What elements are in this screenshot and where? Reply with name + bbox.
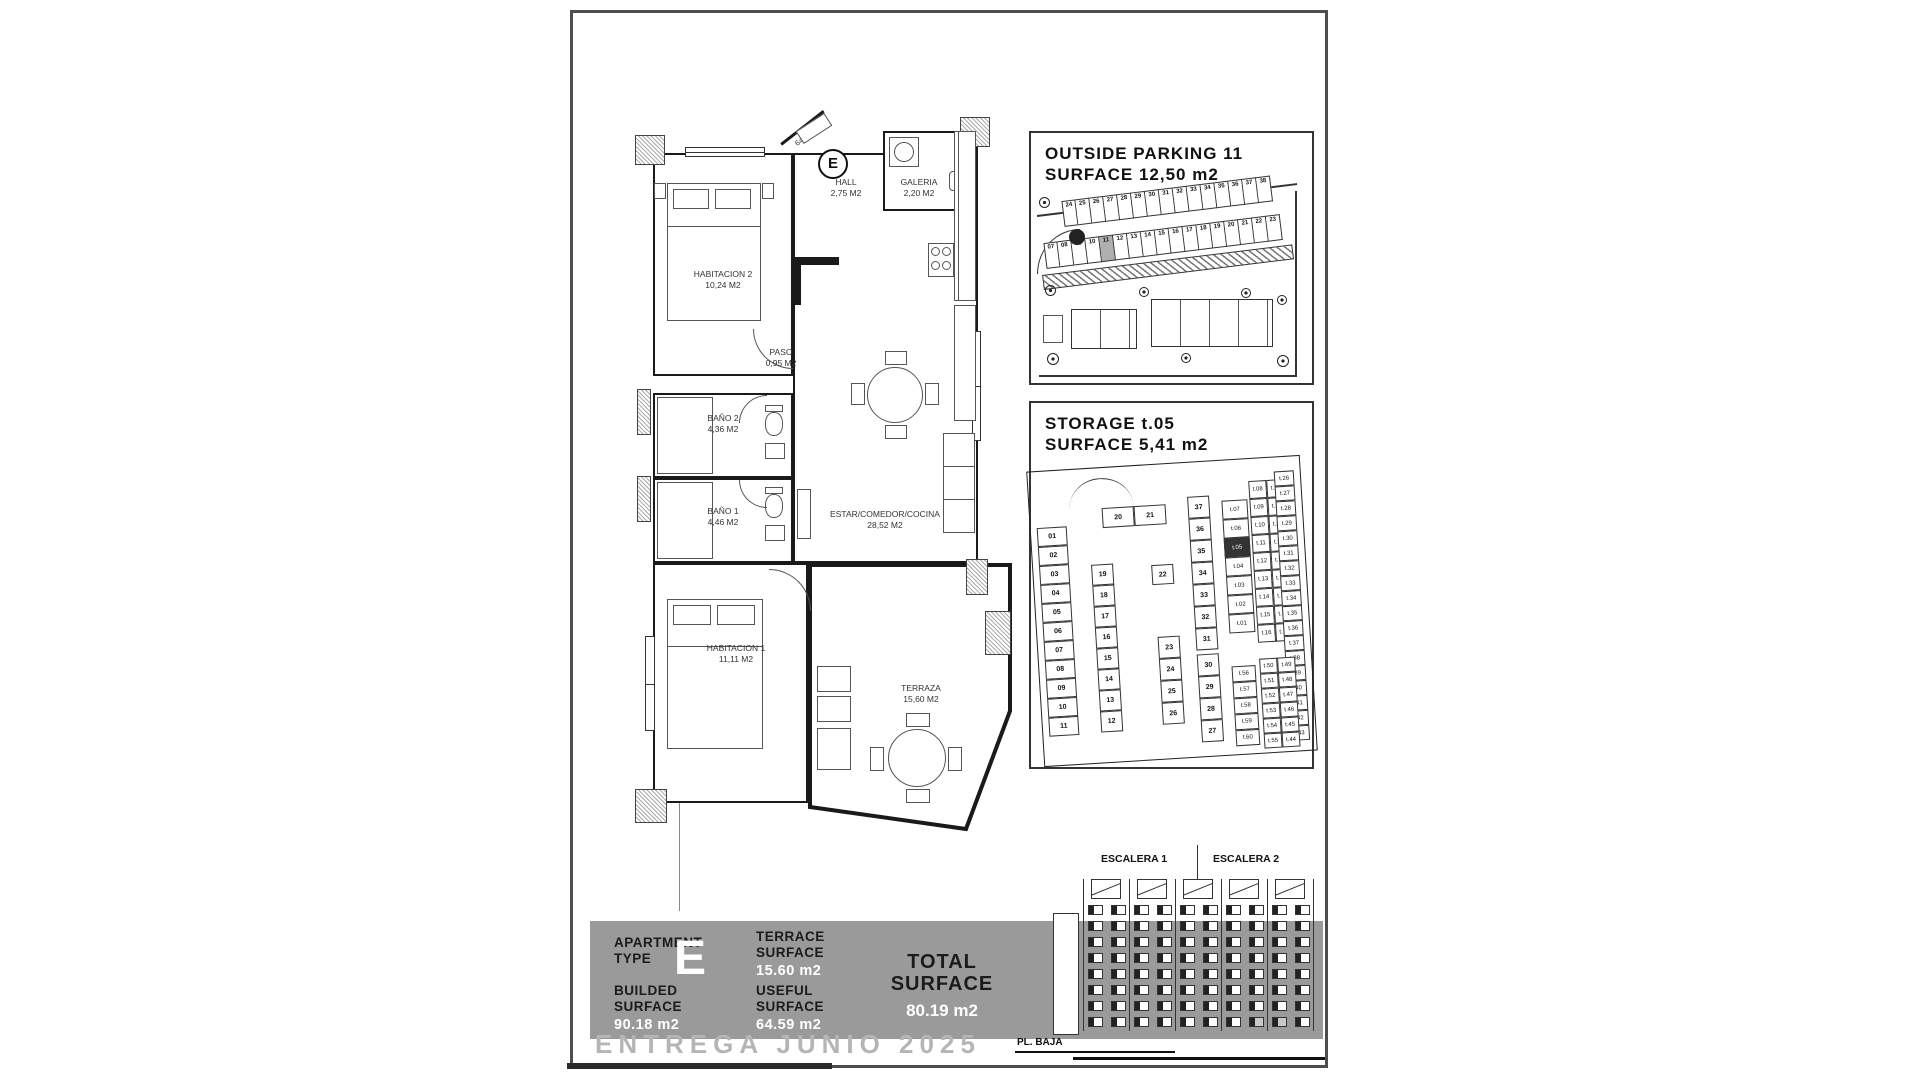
nightstand <box>654 183 666 199</box>
burner <box>942 247 951 256</box>
storage-unit: t.14 <box>1255 588 1274 607</box>
basement-spot: 14 <box>1097 668 1120 690</box>
storage-unit: t.27 <box>1275 485 1296 501</box>
chair <box>885 351 907 365</box>
building-elevation: ESCALERA 1 ESCALERA 2 PL. BAJA <box>1013 845 1333 1063</box>
basement-spot: 28 <box>1199 697 1222 720</box>
basement-spot: 32 <box>1194 605 1217 628</box>
dining-table <box>867 367 923 423</box>
storage-unit: t.55 <box>1264 733 1283 749</box>
tree-icon <box>1039 197 1050 208</box>
building-footprint <box>1151 299 1273 347</box>
wall-pillar <box>966 559 988 595</box>
storage-unit: t.26 <box>1274 470 1295 486</box>
storage-diagram: 0102030405060708091011 2021 191817161514… <box>1026 455 1318 767</box>
storage-unit: t.28 <box>1276 500 1297 516</box>
storage-unit: t.31 <box>1278 545 1299 561</box>
annex-tower <box>1053 913 1079 1035</box>
storage-col-b: 23242526 <box>1158 636 1185 725</box>
basement-spot: 37 <box>1187 496 1210 519</box>
storage-unit: t.03 <box>1226 575 1253 596</box>
plan-sheet: 64,59 M2 E <box>570 10 1328 1068</box>
storage-ramp-spots: 2021 <box>1102 504 1167 528</box>
basement-spot: 13 <box>1099 689 1122 711</box>
storage-unit: t.04 <box>1225 556 1252 577</box>
wall-pillar <box>635 135 665 165</box>
storage-unit: t.29 <box>1276 515 1297 531</box>
tree-icon <box>1045 285 1056 296</box>
parking-boundary-bottom <box>1039 375 1297 377</box>
room-label-banyo-1: BAÑO 14,46 M2 <box>683 506 763 528</box>
wall-stub-h <box>793 257 839 265</box>
nightstand <box>762 183 774 199</box>
ground-line <box>1073 1057 1325 1060</box>
basement-spot: 10 <box>1047 697 1078 718</box>
storage-unit: t.15 <box>1256 606 1275 625</box>
basement-spot: 25 <box>1160 680 1183 703</box>
storage-unit: t.37 <box>1284 635 1305 651</box>
storage-bottom-singles: t.56t.57t.58t.59t.60 <box>1231 665 1260 746</box>
lower-floor-edge-line <box>679 803 680 911</box>
storage-unit-pair: t.55 t.44 <box>1264 731 1301 748</box>
tree-icon <box>1241 288 1251 298</box>
basement-spot: 26 <box>1162 701 1185 724</box>
storage-unit: t.10 <box>1250 516 1269 535</box>
basement-spot: 06 <box>1042 621 1073 642</box>
wall-pillar <box>635 789 667 823</box>
terrace-planter <box>985 611 1011 655</box>
tv-cabinet <box>797 489 811 539</box>
pl-baja-label: PL. BAJA <box>1017 1037 1063 1048</box>
storage-unit: t.50 <box>1259 658 1278 674</box>
basement-spot: 33 <box>1192 583 1215 606</box>
room-label-habitacion-1: HABITACION 111,11 M2 <box>676 643 796 665</box>
terrace-surface-label: TERRACE SURFACE <box>756 929 825 961</box>
chair <box>885 425 907 439</box>
basement-spot: 17 <box>1094 605 1117 627</box>
total-surface-label: TOTAL SURFACE <box>862 951 1022 995</box>
storage-unit: t.08 <box>1248 480 1267 499</box>
wall-pillar <box>637 389 651 435</box>
pillow <box>673 605 711 625</box>
basement-spot: 29 <box>1198 675 1221 698</box>
storage-unit: t.57 <box>1232 681 1257 698</box>
tree-icon <box>1069 229 1085 245</box>
storage-unit: t.01 <box>1228 613 1255 634</box>
room-label-galeria: GALERIA2,20 M2 <box>877 177 961 199</box>
builded-surface-label: BUILDED SURFACE <box>614 983 682 1015</box>
storage-unit: t.02 <box>1227 594 1254 615</box>
storage-unit: t.56 <box>1231 665 1256 682</box>
building-footprint <box>1071 309 1137 349</box>
terrace-bench <box>817 728 851 770</box>
basement-spot: 08 <box>1045 659 1076 680</box>
terrace-surface-value: 15.60 m2 <box>756 963 821 979</box>
basement-spot: 23 <box>1158 636 1181 659</box>
room-label-hall: HALL2,75 M2 <box>811 177 881 199</box>
basement-spot: 09 <box>1046 678 1077 699</box>
basement-spot: 36 <box>1188 517 1211 540</box>
storage-unit: t.46 <box>1280 701 1299 717</box>
toilet-tank <box>765 487 783 494</box>
storage-unit: t.34 <box>1281 590 1302 606</box>
storage-unit: t.16 <box>1257 624 1276 643</box>
basement-spot: 31 <box>1195 627 1218 650</box>
storage-unit: t.30 <box>1277 530 1298 546</box>
room-label-habitacion-2: HABITACION 210,24 M2 <box>663 269 783 291</box>
storage-unit: t.11 <box>1252 534 1271 553</box>
room-label-paso: PASO0,95 M2 <box>753 347 809 369</box>
storage-col-a: 1918171615141312 <box>1091 564 1123 733</box>
basement-spot: 07 <box>1044 640 1075 661</box>
floor-plan: 64,59 M2 E <box>621 91 1071 857</box>
delivery-watermark: ENTREGA JUNIO 2025 <box>595 1029 981 1060</box>
storage-left-spots: 0102030405060708091011 <box>1037 526 1080 736</box>
terrace-bench <box>817 666 851 692</box>
basement-spot: 15 <box>1096 647 1119 669</box>
counter-edge <box>958 131 959 301</box>
chair <box>851 383 865 405</box>
storage-unit: t.52 <box>1261 688 1280 704</box>
storage-bottom-pairs: t.50 t.49 t.51 t.48 t.52 t.47 t.53 t.46 … <box>1259 657 1300 749</box>
elevation-facade <box>1083 879 1315 1035</box>
storage-unit: t.05 <box>1224 537 1251 558</box>
sofa-cushion-line <box>943 466 975 467</box>
basement-spot: 12 <box>1100 710 1123 732</box>
sofa-cushion-line <box>943 499 975 500</box>
terrace-table <box>888 729 946 787</box>
basement-spot: 21 <box>1134 504 1167 526</box>
basement-spot: 19 <box>1091 564 1114 586</box>
pillow <box>673 189 709 209</box>
window-hab1 <box>645 636 655 731</box>
terrace-bench <box>817 696 851 722</box>
pillow <box>717 605 755 625</box>
storage-col-c: 37363534333231 <box>1187 496 1218 651</box>
room-label-banyo-2: BAÑO 24,36 M2 <box>683 413 763 435</box>
ground-annotation-line <box>1015 1051 1175 1053</box>
basement-spot: 11 <box>1048 716 1079 737</box>
basement-spot: 24 <box>1159 658 1182 681</box>
basement-spot: 16 <box>1095 626 1118 648</box>
storage-unit: t.60 <box>1235 729 1260 746</box>
basement-spot: 20 <box>1102 506 1135 528</box>
sink-icon <box>765 443 785 459</box>
storage-col-d: 30292827 <box>1197 653 1224 742</box>
parking-title: OUTSIDE PARKING 11 SURFACE 12,50 m2 <box>1045 143 1243 186</box>
tree-icon <box>1139 287 1149 297</box>
window-hab2 <box>685 147 765 157</box>
chair <box>870 747 884 771</box>
storage-unit: t.45 <box>1281 716 1300 732</box>
wall-pillar <box>637 476 651 522</box>
tree-icon <box>1277 355 1289 367</box>
storage-unit: t.33 <box>1280 575 1301 591</box>
storage-unit: t.06 <box>1223 518 1250 539</box>
storage-panel: STORAGE t.05 SURFACE 5,41 m2 01020304050… <box>1029 401 1314 769</box>
basement-spot: 04 <box>1040 583 1071 604</box>
storage-unit: t.51 <box>1260 673 1279 689</box>
chair <box>925 383 939 405</box>
basement-spot: 01 <box>1037 526 1068 547</box>
burner <box>931 261 940 270</box>
washer-drum <box>894 142 914 162</box>
room-label-terraza: TERRAZA15,60 M2 <box>871 683 971 705</box>
kitchen-counter <box>954 305 976 421</box>
basement-spot: 27 <box>1201 719 1224 742</box>
basement-spot: 18 <box>1092 584 1115 606</box>
storage-unit: t.12 <box>1253 552 1272 571</box>
basement-spot: 02 <box>1038 545 1069 566</box>
toilet-tank <box>765 405 783 412</box>
basement-spot: 34 <box>1191 561 1214 584</box>
burner <box>931 247 940 256</box>
tree-icon <box>1277 295 1287 305</box>
tree-icon <box>1181 353 1191 363</box>
storage-unit: t.13 <box>1254 570 1273 589</box>
chair <box>948 747 962 771</box>
storage-unit: t.49 <box>1277 657 1296 673</box>
sink-icon <box>765 525 785 541</box>
storage-unit: t.44 <box>1282 731 1301 747</box>
chair <box>906 789 930 803</box>
escalera-1-label: ESCALERA 1 <box>1101 853 1167 865</box>
basement-spot: 03 <box>1039 564 1070 585</box>
storage-title: STORAGE t.05 SURFACE 5,41 m2 <box>1045 413 1208 456</box>
storage-unit: t.09 <box>1249 498 1268 517</box>
basement-spot: 35 <box>1190 539 1213 562</box>
storage-unit: t.59 <box>1234 713 1259 730</box>
basement-spot: 30 <box>1197 653 1220 676</box>
type-badge-circle: E <box>818 149 848 179</box>
chair <box>906 713 930 727</box>
room-label-estar: ESTAR/COMEDOR/COCINA28,52 M2 <box>815 509 955 531</box>
storage-unit: t.53 <box>1262 703 1281 719</box>
storage-unit: t.58 <box>1233 697 1258 714</box>
total-surface-value: 80.19 m2 <box>862 1001 1022 1021</box>
escalera-2-label: ESCALERA 2 <box>1213 853 1279 865</box>
storage-unit: t.35 <box>1282 605 1303 621</box>
basement-spot: 05 <box>1041 602 1072 623</box>
pillow <box>715 189 751 209</box>
parking-boundary-right <box>1295 191 1297 377</box>
sheet-bottom-accent <box>567 1063 832 1069</box>
bed-sheet-line <box>667 226 761 227</box>
storage-unit: t.48 <box>1278 672 1297 688</box>
burner <box>942 261 951 270</box>
storage-unit: t.54 <box>1263 718 1282 734</box>
storage-unit: t.36 <box>1283 620 1304 636</box>
toilet-icon <box>765 412 783 436</box>
building-footprint <box>1043 315 1063 343</box>
basement-spot: 22 <box>1151 564 1174 585</box>
parking-slot: 23 <box>1266 214 1283 242</box>
storage-unit: t.07 <box>1221 499 1248 520</box>
toilet-icon <box>765 494 783 518</box>
parking-slot: 38 <box>1256 176 1273 204</box>
bathtub-banyo-2 <box>657 397 713 474</box>
useful-surface-label: USEFUL SURFACE <box>756 983 824 1015</box>
tree-icon <box>1047 353 1059 365</box>
parking-panel: OUTSIDE PARKING 11 SURFACE 12,50 m2 2425… <box>1029 131 1314 385</box>
storage-unit: t.32 <box>1279 560 1300 576</box>
storage-unit: t.47 <box>1279 687 1298 703</box>
apartment-type-value: E <box>674 935 706 983</box>
